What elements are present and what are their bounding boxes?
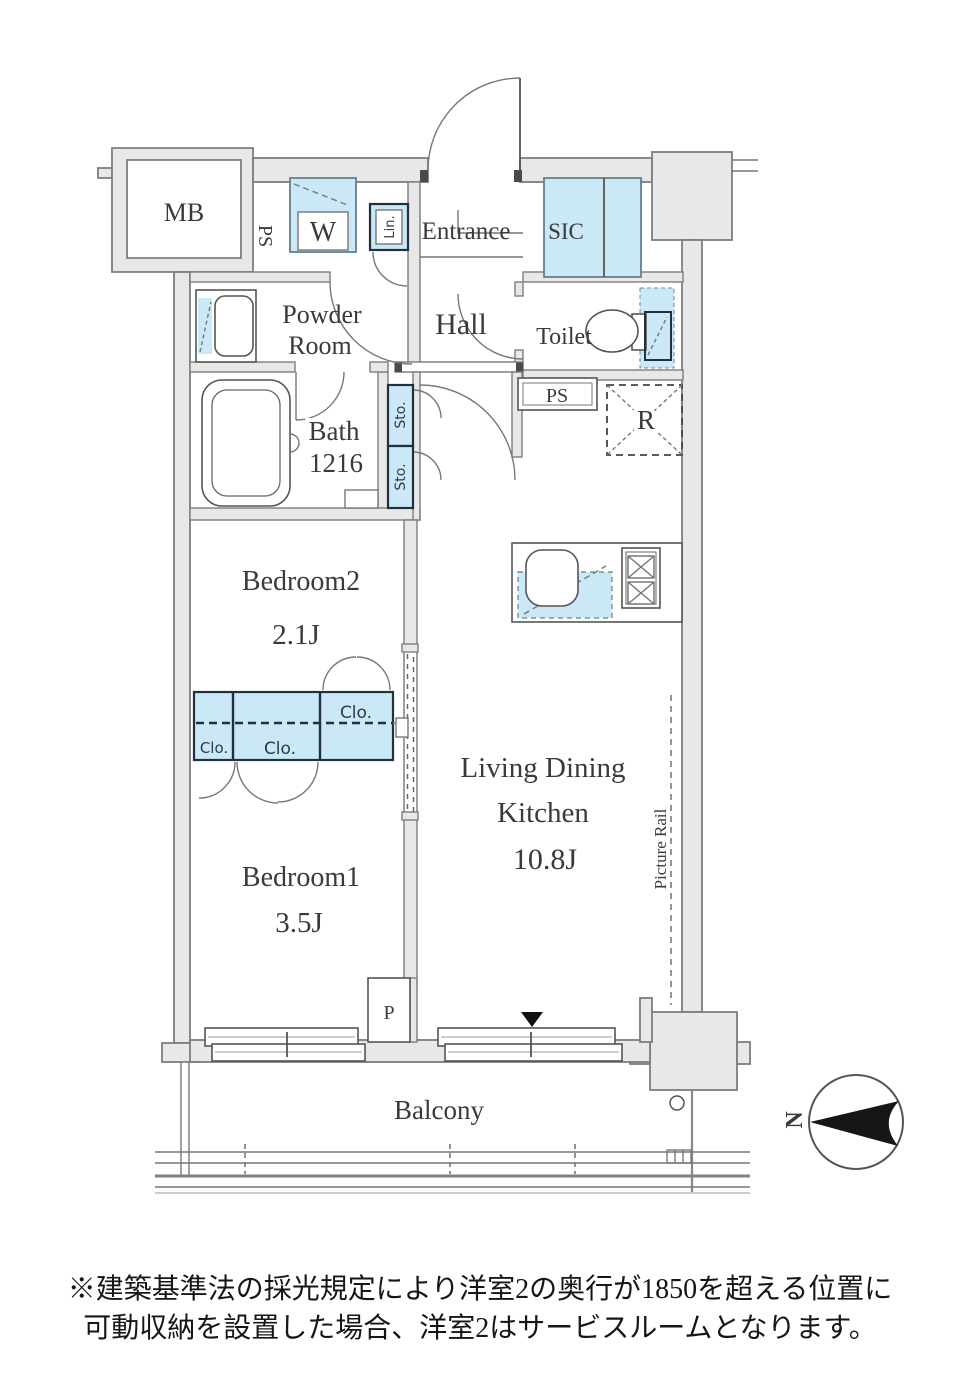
label-bath: Bath xyxy=(309,416,360,446)
label-closet-3: Clo. xyxy=(340,703,372,723)
label-bedroom2-size: 2.1J xyxy=(272,619,320,651)
label-storage-1: Sto. xyxy=(393,401,409,428)
pillar-bottom-right xyxy=(650,1012,737,1090)
note-line-2: 可動収納を設置した場合、洋室2はサービスルームとなります。 xyxy=(83,1312,877,1344)
label-ldk-size: 10.8J xyxy=(513,843,578,876)
closets xyxy=(194,657,407,803)
pillar-top-right xyxy=(652,152,732,240)
floor-plan-page: N MB PS W Lin. Entrance SIC Powder Room … xyxy=(0,0,960,1394)
label-refrigerator: R xyxy=(637,405,655,435)
label-bedroom1: Bedroom1 xyxy=(242,862,360,893)
right-exterior-wall xyxy=(682,240,702,1012)
label-ps-duct: PS xyxy=(546,385,568,407)
toilet-fixture xyxy=(586,288,674,368)
label-pipe-space: P xyxy=(383,1002,394,1024)
linen-door-swing xyxy=(373,252,407,286)
left-exterior-wall xyxy=(174,272,190,1043)
label-ldk-1: Living Dining xyxy=(460,752,625,784)
label-closet-2: Clo. xyxy=(264,739,296,759)
compass-needle-icon xyxy=(810,1101,899,1146)
label-ps-shaft: PS xyxy=(254,225,276,247)
bath-door-swing xyxy=(296,372,344,420)
toilet-bowl xyxy=(586,310,638,352)
label-bedroom2: Bedroom2 xyxy=(242,566,360,597)
label-bedroom1-size: 3.5J xyxy=(275,907,323,939)
label-storage-2: Sto. xyxy=(393,463,409,490)
label-sic: SIC xyxy=(548,219,584,244)
balcony-drain xyxy=(670,1096,684,1110)
label-picture-rail: Picture Rail xyxy=(651,808,670,889)
label-entrance: Entrance xyxy=(422,218,511,245)
entrance-door-swing xyxy=(428,78,520,170)
compass-north-label: N xyxy=(782,1111,808,1129)
label-closet-1: Clo. xyxy=(200,739,228,757)
label-meter-box: MB xyxy=(164,198,204,227)
label-linen: Lin. xyxy=(383,215,398,238)
balcony-railing xyxy=(155,1144,750,1193)
footnote: ※建築基準法の採光規定により洋室2の奥行が1850を超える位置に 可動収納を設置… xyxy=(68,1273,893,1344)
kitchen-counter xyxy=(512,543,682,622)
kitchen-sink xyxy=(526,550,578,606)
label-balcony: Balcony xyxy=(394,1095,484,1125)
entry-marker-triangle xyxy=(521,1012,543,1027)
label-powder-room-1: Powder xyxy=(282,300,362,329)
ldk-window xyxy=(438,1028,622,1061)
compass: N xyxy=(782,1075,903,1169)
balcony-partition xyxy=(181,1062,189,1176)
label-hall: Hall xyxy=(435,308,487,341)
washbasin xyxy=(196,290,256,362)
sliding-door xyxy=(396,644,418,820)
label-powder-room-2: Room xyxy=(288,331,352,360)
label-ldk-2: Kitchen xyxy=(497,797,589,829)
note-line-1: ※建築基準法の採光規定により洋室2の奥行が1850を超える位置に xyxy=(68,1273,893,1305)
bedroom1-window xyxy=(205,1028,365,1061)
hall-threshold xyxy=(395,362,523,372)
label-bath-size: 1216 xyxy=(309,448,363,478)
floor-plan: N MB PS W Lin. Entrance SIC Powder Room … xyxy=(0,0,960,1394)
stove xyxy=(622,548,660,608)
label-toilet: Toilet xyxy=(536,324,592,350)
label-washer: W xyxy=(310,217,337,248)
